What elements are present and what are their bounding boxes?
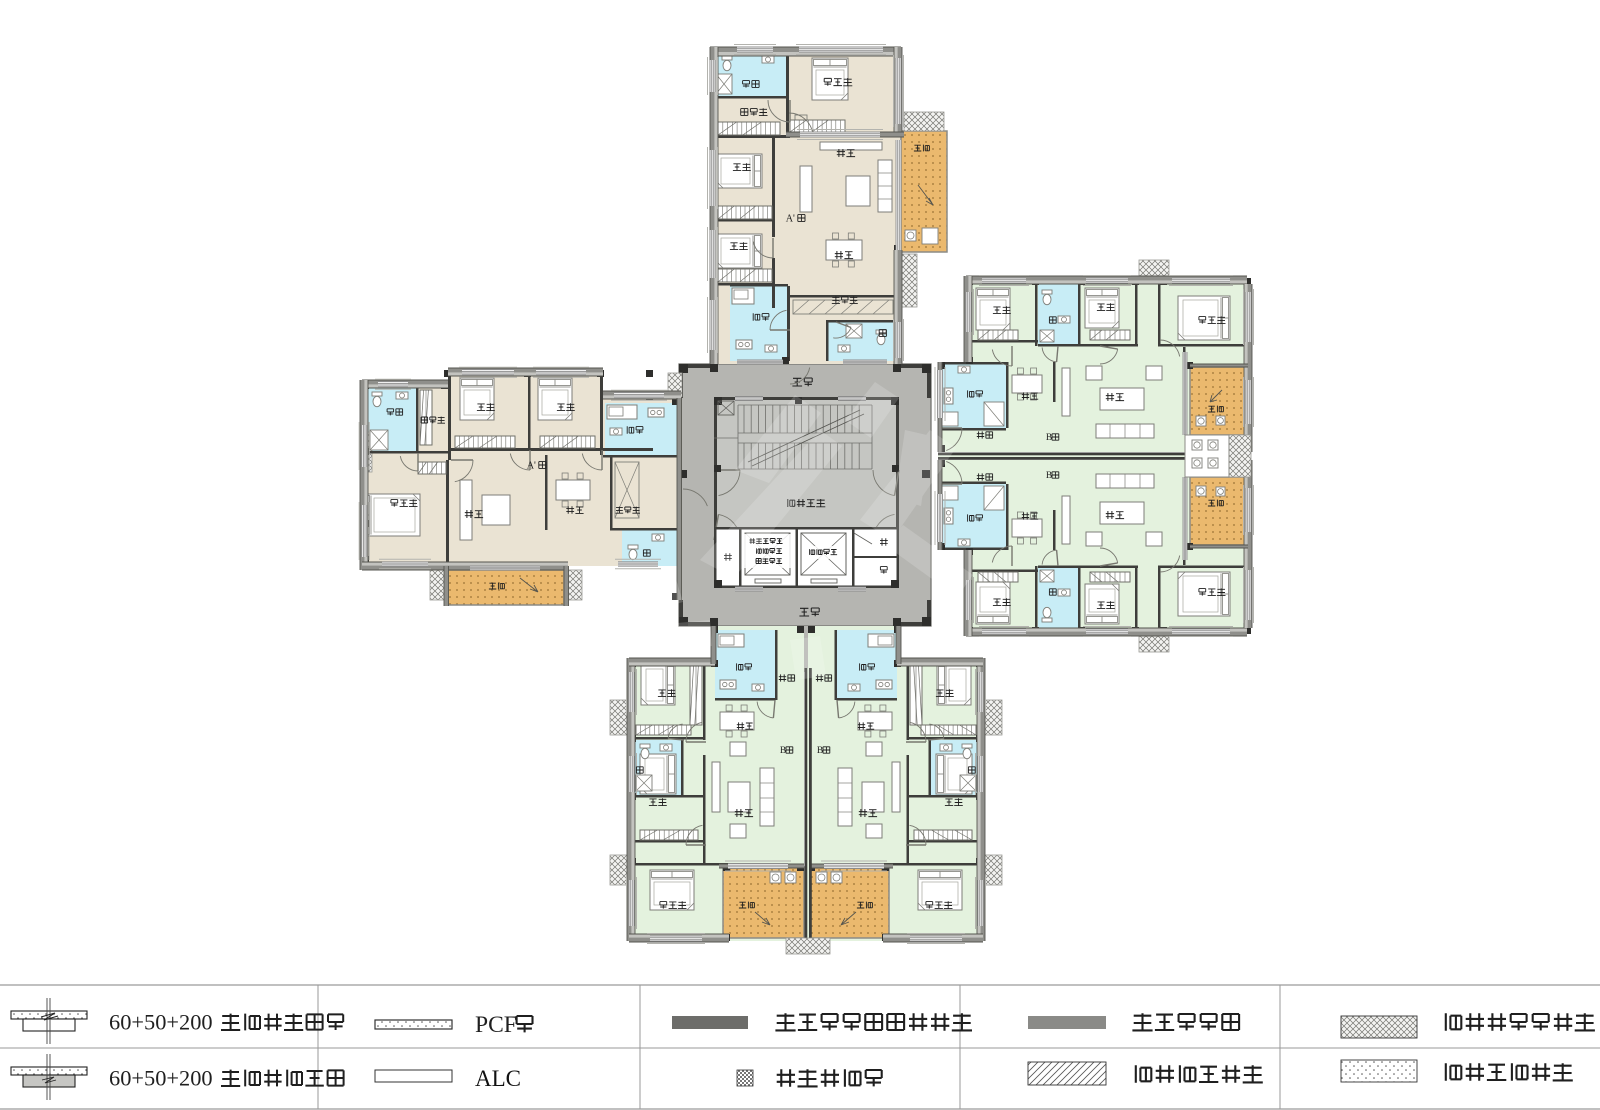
svg-text:B: B <box>1046 471 1052 481</box>
svg-text:ALC: ALC <box>475 1066 521 1091</box>
svg-text:B: B <box>1046 433 1052 443</box>
svg-text:PCF: PCF <box>475 1012 517 1038</box>
svg-text:60+50+200: 60+50+200 <box>109 1010 213 1035</box>
svg-text:A': A' <box>527 460 536 471</box>
svg-text:A': A' <box>786 213 795 224</box>
svg-text:B: B <box>780 746 786 756</box>
svg-text:60+50+200: 60+50+200 <box>109 1066 213 1091</box>
svg-text:B: B <box>817 746 823 756</box>
